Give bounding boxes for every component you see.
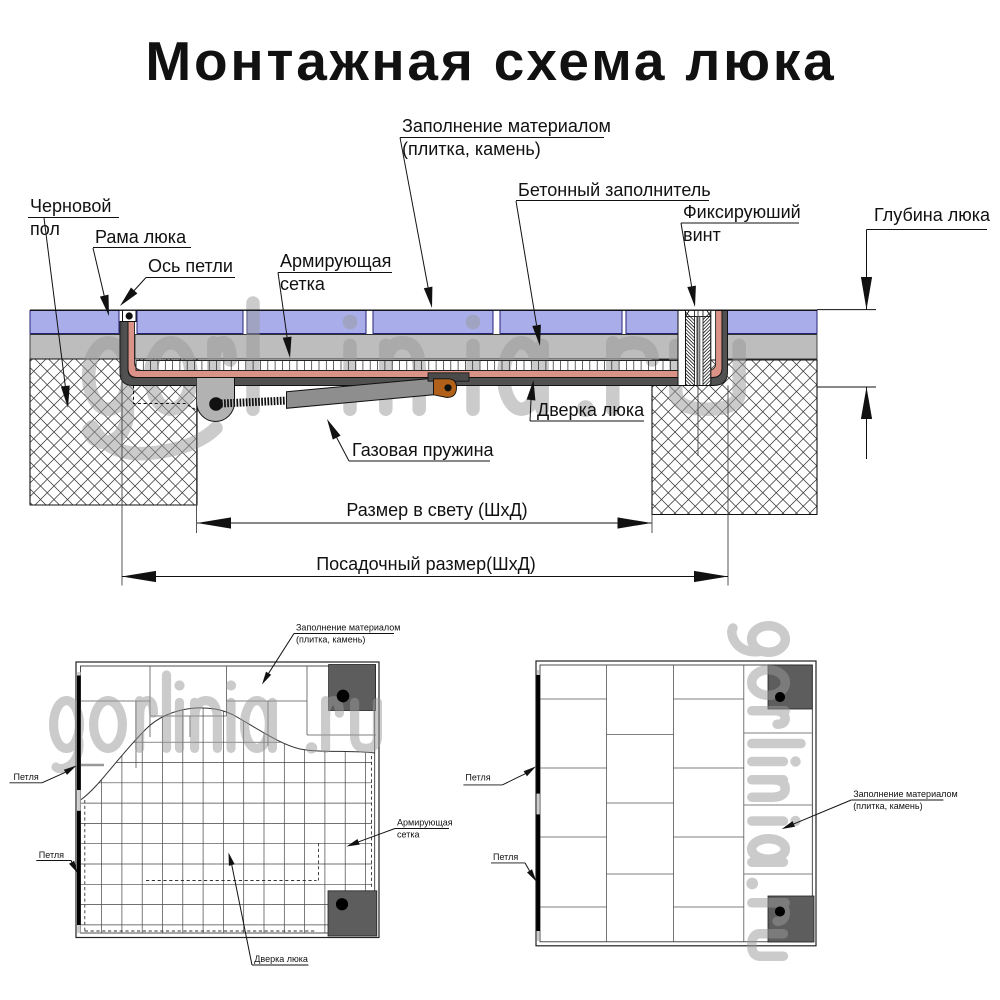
svg-text:Петля: Петля	[39, 850, 64, 860]
svg-text:(плитка, камень): (плитка, камень)	[402, 139, 541, 159]
svg-text:Армирующая: Армирующая	[397, 818, 453, 828]
svg-text:Дверка люка: Дверка люка	[254, 954, 308, 964]
svg-text:Бетонный заполнитель: Бетонный заполнитель	[518, 180, 711, 200]
svg-text:винт: винт	[683, 225, 721, 245]
svg-text:Фиксируюший: Фиксируюший	[683, 202, 801, 222]
svg-text:(плитка, камень): (плитка, камень)	[853, 801, 922, 811]
svg-text:Размер в свету (ШхД): Размер в свету (ШхД)	[346, 500, 527, 520]
svg-text:Петля: Петля	[14, 772, 39, 782]
svg-text:Армирующая: Армирующая	[280, 251, 391, 271]
svg-text:Петля: Петля	[465, 773, 490, 783]
svg-text:Заполнение материалом: Заполнение материалом	[296, 623, 400, 633]
svg-text:сетка: сетка	[397, 830, 419, 840]
svg-text:(плитка, камень): (плитка, камень)	[296, 635, 365, 645]
svg-text:Рама люка: Рама люка	[95, 227, 187, 247]
svg-text:Газовая пружина: Газовая пружина	[352, 440, 495, 460]
svg-text:Глубина люка: Глубина люка	[874, 205, 991, 225]
svg-text:сетка: сетка	[280, 274, 326, 294]
svg-text:Ось петли: Ось петли	[148, 256, 233, 276]
svg-text:Монтажная схема люка: Монтажная схема люка	[145, 30, 836, 92]
svg-text:Заполнение материалом: Заполнение материалом	[402, 116, 611, 136]
svg-text:Петля: Петля	[493, 852, 518, 862]
svg-text:Черновой: Черновой	[30, 196, 111, 216]
svg-text:Посадочный размер(ШхД): Посадочный размер(ШхД)	[316, 554, 536, 574]
svg-text:Заполнение материалом: Заполнение материалом	[853, 789, 957, 799]
svg-text:Дверка люка: Дверка люка	[537, 400, 645, 420]
